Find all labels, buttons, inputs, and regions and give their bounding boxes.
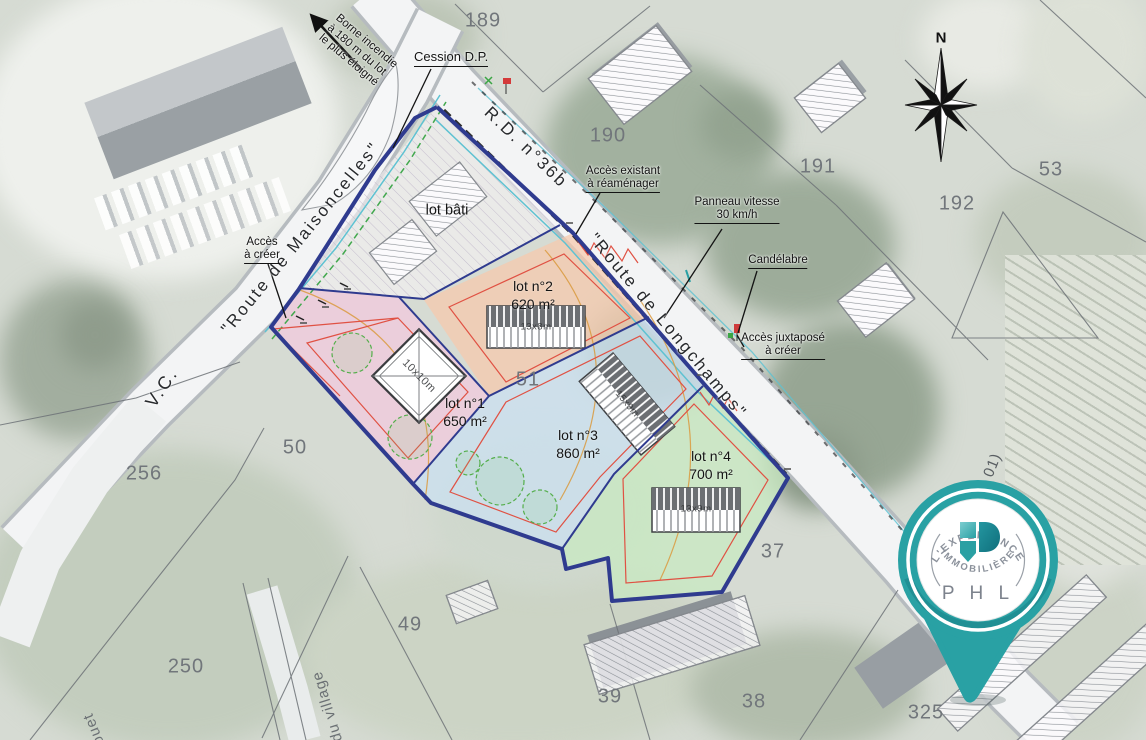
lot3-label: lot n°3 860 m² bbox=[556, 426, 600, 462]
compass-rose bbox=[905, 48, 977, 162]
parcel-190: 190 bbox=[590, 125, 626, 148]
annotation-panneau-vitesse: Panneau vitesse 30 km/h bbox=[694, 196, 779, 224]
lot1-name: lot n°1 bbox=[443, 394, 487, 412]
parcel-192: 192 bbox=[939, 193, 975, 216]
lot2-area: 620 m² bbox=[511, 295, 555, 313]
acces-juxtapose-line1: Accès juxtaposé bbox=[741, 332, 825, 345]
parcel-189: 189 bbox=[465, 10, 501, 33]
acces-existant-line1: Accès existant bbox=[586, 165, 660, 178]
lot2-label: lot n°2 620 m² bbox=[511, 277, 555, 313]
acces-existant-line2: à réaménager bbox=[586, 178, 660, 191]
logo-phl-text: P H L bbox=[942, 583, 1014, 604]
parcel-50: 50 bbox=[283, 437, 307, 460]
parcel-38: 38 bbox=[742, 691, 766, 714]
lot2-name: lot n°2 bbox=[511, 277, 555, 295]
parcel-51: 51 bbox=[516, 369, 540, 392]
acces-juxtapose-line2: à créer bbox=[741, 345, 825, 358]
compass-north-label: N bbox=[936, 30, 947, 47]
parcel-250: 250 bbox=[168, 656, 204, 679]
annotation-candelabre: Candélabre bbox=[748, 254, 807, 269]
parcel-39: 39 bbox=[598, 686, 622, 709]
lot1-area: 650 m² bbox=[443, 412, 487, 430]
lot3-area: 860 m² bbox=[556, 444, 600, 462]
parcel-256: 256 bbox=[126, 463, 162, 486]
lot-bati-label: lot bâti bbox=[426, 202, 469, 221]
acces-creer-line1: Accès bbox=[244, 236, 280, 249]
panneau-line2: 30 km/h bbox=[694, 209, 779, 222]
lot2-building-dim: 13x8m bbox=[520, 322, 551, 333]
lot4-label: lot n°4 700 m² bbox=[689, 447, 733, 483]
lot4-building-dim: 13x9m bbox=[680, 504, 711, 515]
annotation-acces-a-creer: Accès à créer bbox=[244, 236, 280, 264]
annotation-acces-existant: Accès existant à réaménager bbox=[586, 165, 660, 193]
lot4-name: lot n°4 bbox=[689, 447, 733, 465]
annotation-cession-dp: Cession D.P. bbox=[414, 50, 488, 67]
aerial-subdivision-plan: 189 190 191 192 53 51 50 256 49 250 37 3… bbox=[0, 0, 1146, 740]
road-village-lane bbox=[262, 590, 305, 740]
acces-creer-line2: à créer bbox=[244, 249, 280, 262]
lot4-area: 700 m² bbox=[689, 465, 733, 483]
lot3-name: lot n°3 bbox=[556, 426, 600, 444]
panneau-line1: Panneau vitesse bbox=[694, 196, 779, 209]
phl-logo-pin: L'EXPÉRIENCE IMMOBILIÈRE P H L bbox=[888, 448, 1068, 708]
parcel-191: 191 bbox=[800, 156, 836, 179]
parcel-37: 37 bbox=[761, 541, 785, 564]
parcel-53: 53 bbox=[1039, 159, 1063, 182]
annotation-acces-juxtapose: Accès juxtaposé à créer bbox=[741, 332, 825, 360]
parcel-49: 49 bbox=[398, 614, 422, 637]
lot1-label: lot n°1 650 m² bbox=[443, 394, 487, 430]
